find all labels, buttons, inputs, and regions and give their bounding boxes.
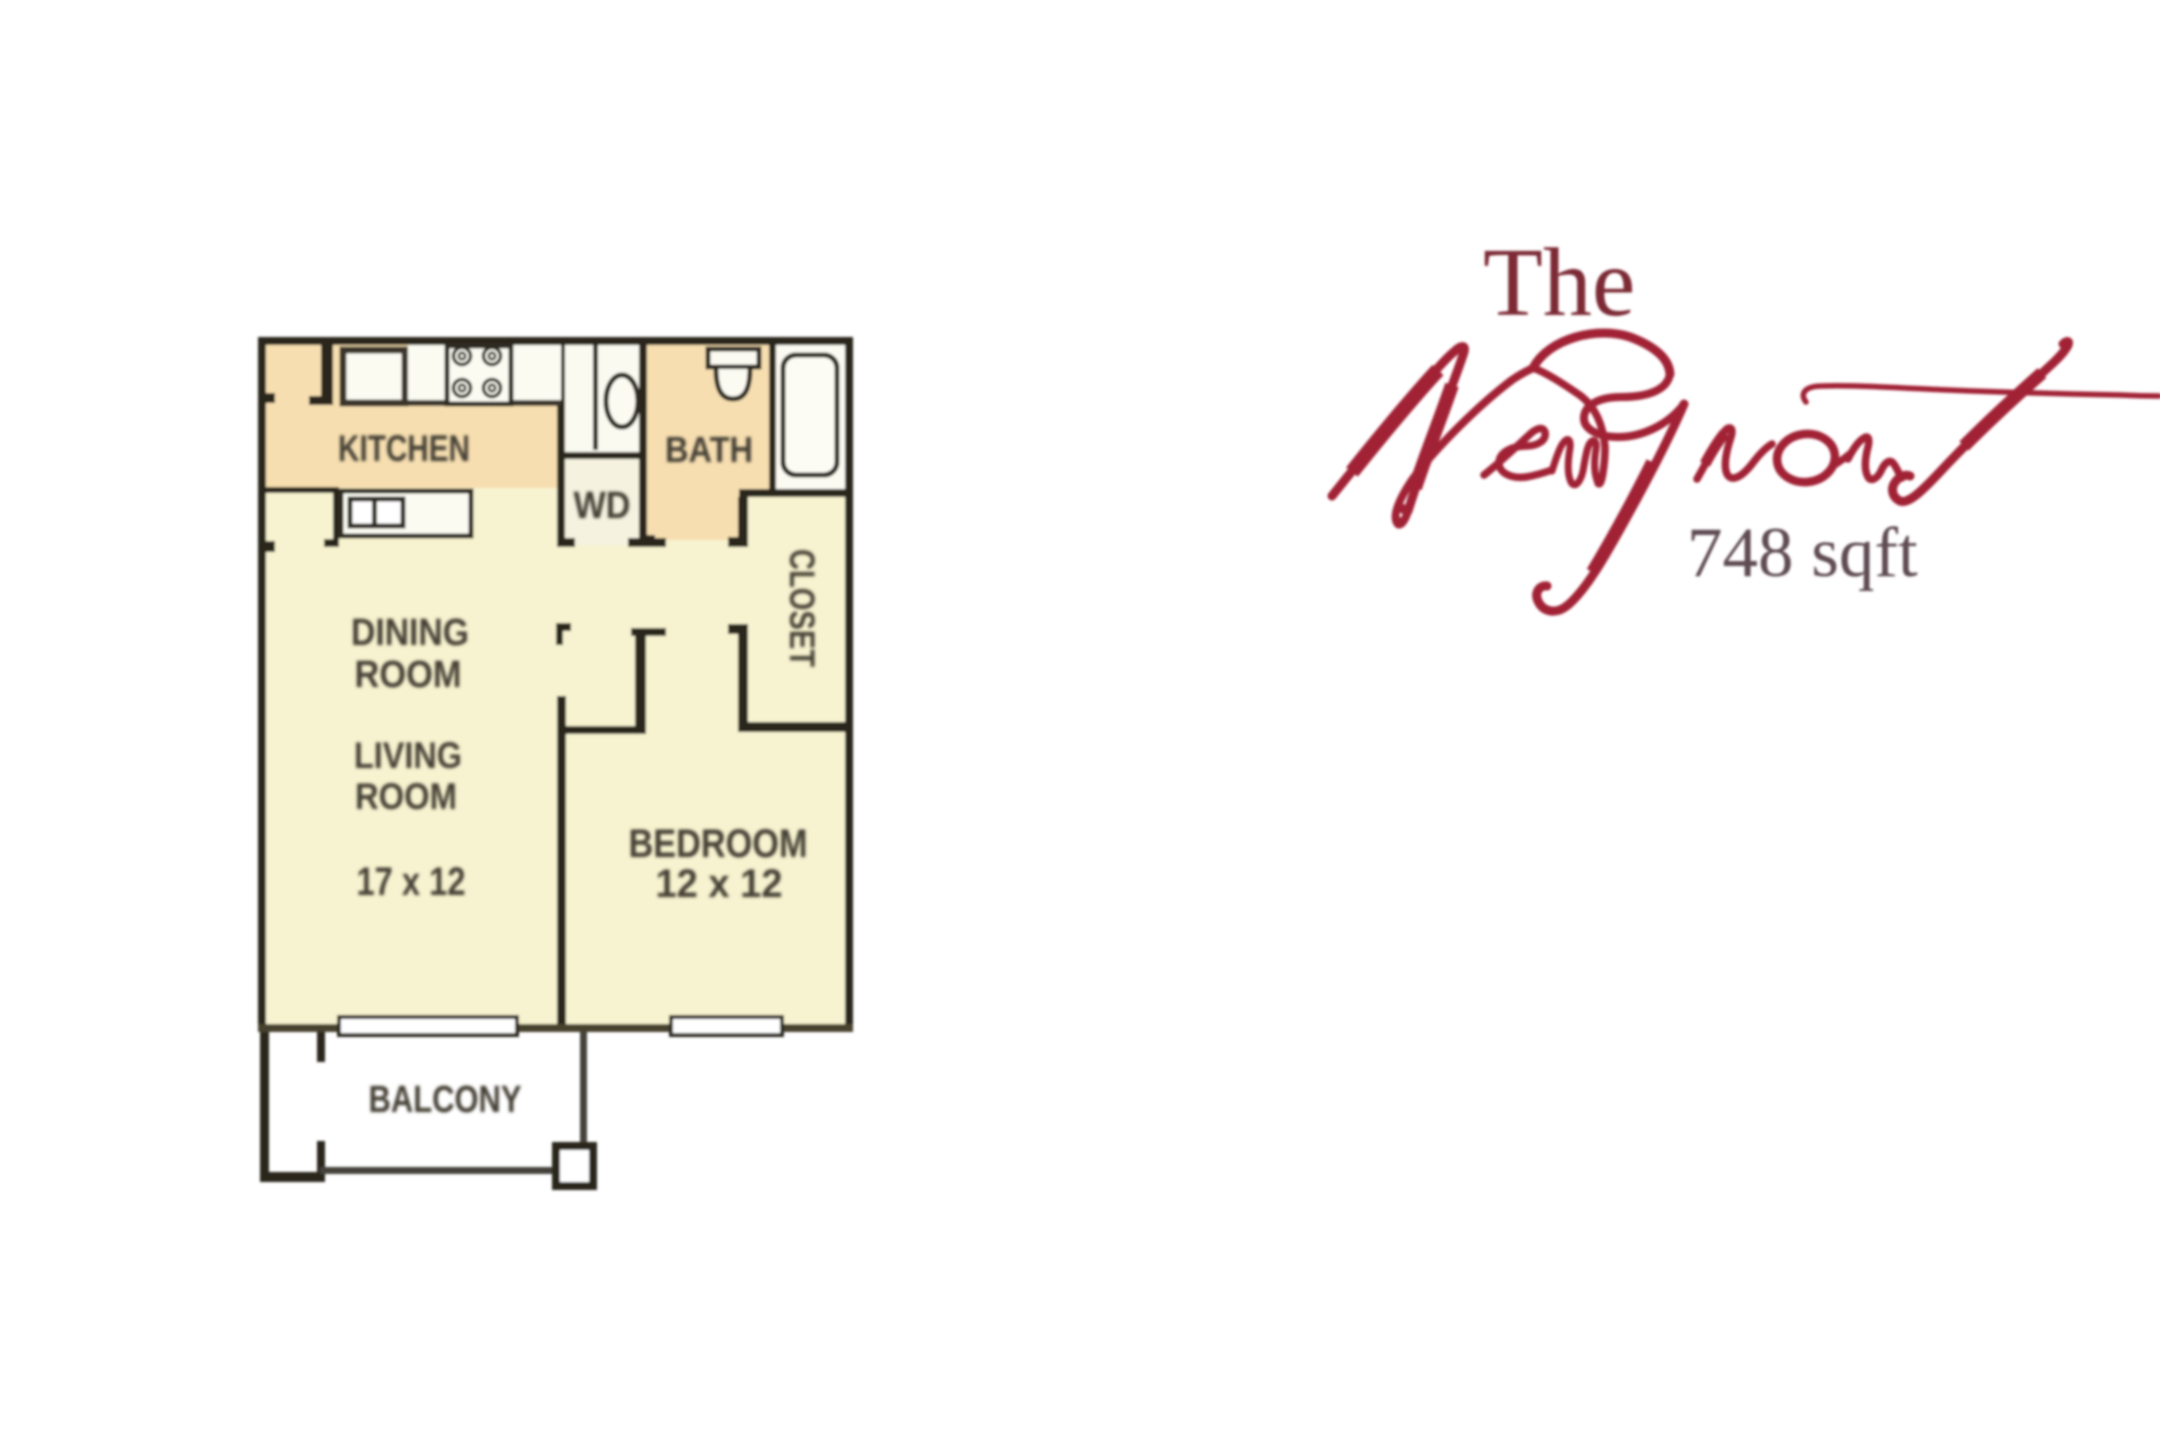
svg-text:The: The	[1483, 229, 1635, 337]
svg-text:ROOM: ROOM	[355, 776, 457, 817]
svg-text:BALCONY: BALCONY	[369, 1079, 522, 1121]
svg-text:12 x 12: 12 x 12	[656, 862, 783, 906]
svg-text:748 sqft: 748 sqft	[1687, 514, 1918, 592]
svg-text:CLOSET: CLOSET	[782, 549, 821, 667]
svg-text:DINING: DINING	[351, 612, 469, 654]
svg-text:BEDROOM: BEDROOM	[629, 822, 808, 866]
svg-text:BATH: BATH	[665, 429, 753, 470]
svg-text:KITCHEN: KITCHEN	[338, 428, 470, 469]
svg-text:LIVING: LIVING	[354, 735, 462, 776]
svg-text:ROOM: ROOM	[355, 654, 462, 696]
svg-text:WD: WD	[574, 485, 631, 527]
svg-text:17 x 12: 17 x 12	[357, 860, 466, 904]
